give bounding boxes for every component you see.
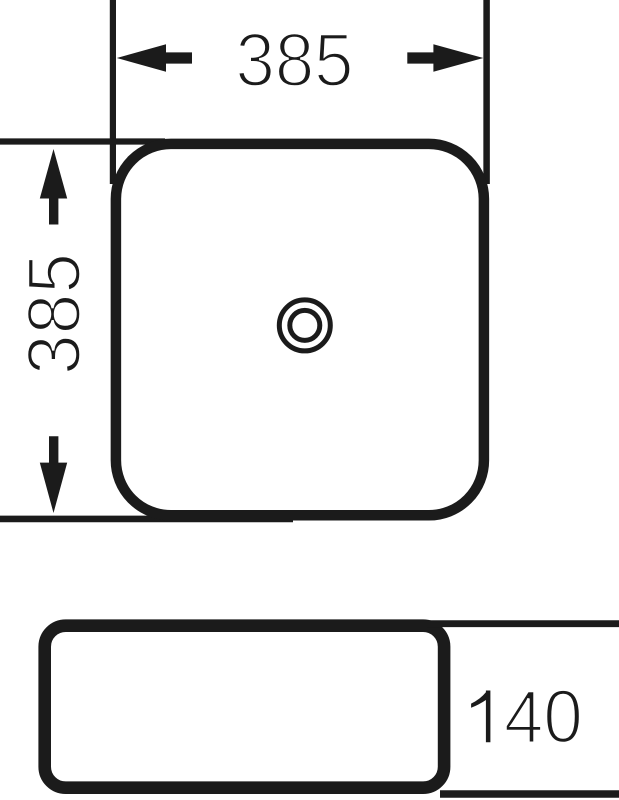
svg-text:385: 385 xyxy=(236,18,354,102)
svg-text:385: 385 xyxy=(12,253,96,375)
svg-text:40: 40 xyxy=(504,675,583,759)
